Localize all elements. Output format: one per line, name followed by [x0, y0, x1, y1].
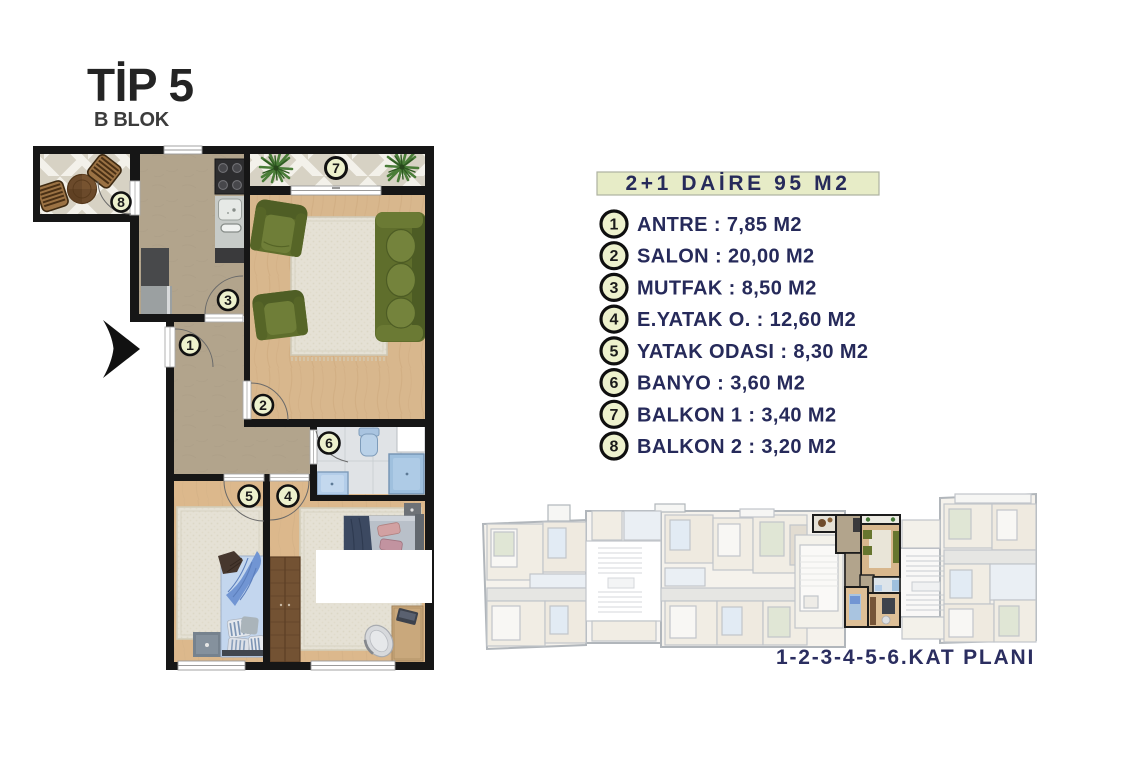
svg-text:YATAK ODASI : 8,30 M2: YATAK ODASI : 8,30 M2	[637, 341, 868, 363]
svg-text:2: 2	[610, 248, 619, 265]
svg-text:8: 8	[610, 439, 619, 456]
svg-text:4: 4	[284, 488, 292, 504]
svg-text:2: 2	[259, 397, 267, 413]
svg-text:SALON : 20,00 M2: SALON : 20,00 M2	[637, 246, 815, 268]
svg-text:MUTFAK : 8,50 M2: MUTFAK : 8,50 M2	[637, 277, 817, 299]
svg-text:B BLOK: B BLOK	[94, 109, 170, 131]
svg-text:6: 6	[325, 435, 333, 451]
svg-text:8: 8	[117, 194, 125, 210]
svg-text:BALKON 1 : 3,40 M2: BALKON 1 : 3,40 M2	[637, 404, 836, 426]
svg-text:E.YATAK O. : 12,60 M2: E.YATAK O. : 12,60 M2	[637, 309, 856, 331]
svg-text:BALKON 2 : 3,20 M2: BALKON 2 : 3,20 M2	[637, 436, 836, 458]
svg-text:5: 5	[245, 488, 253, 504]
svg-text:5: 5	[610, 343, 619, 360]
svg-text:1: 1	[186, 337, 194, 353]
svg-text:2+1 DAİRE 95 M2: 2+1 DAİRE 95 M2	[626, 172, 851, 195]
svg-text:7: 7	[610, 407, 619, 424]
svg-text:6: 6	[610, 375, 619, 392]
svg-text:7: 7	[332, 160, 340, 176]
svg-text:ANTRE : 7,85 M2: ANTRE : 7,85 M2	[637, 214, 802, 236]
svg-text:1: 1	[610, 217, 619, 234]
svg-text:3: 3	[224, 292, 232, 308]
svg-text:4: 4	[610, 312, 619, 329]
svg-text:1-2-3-4-5-6.KAT PLANI: 1-2-3-4-5-6.KAT PLANI	[776, 646, 1035, 669]
svg-text:TİP 5: TİP 5	[87, 59, 194, 111]
svg-text:3: 3	[610, 280, 619, 297]
svg-text:BANYO : 3,60 M2: BANYO : 3,60 M2	[637, 373, 805, 395]
